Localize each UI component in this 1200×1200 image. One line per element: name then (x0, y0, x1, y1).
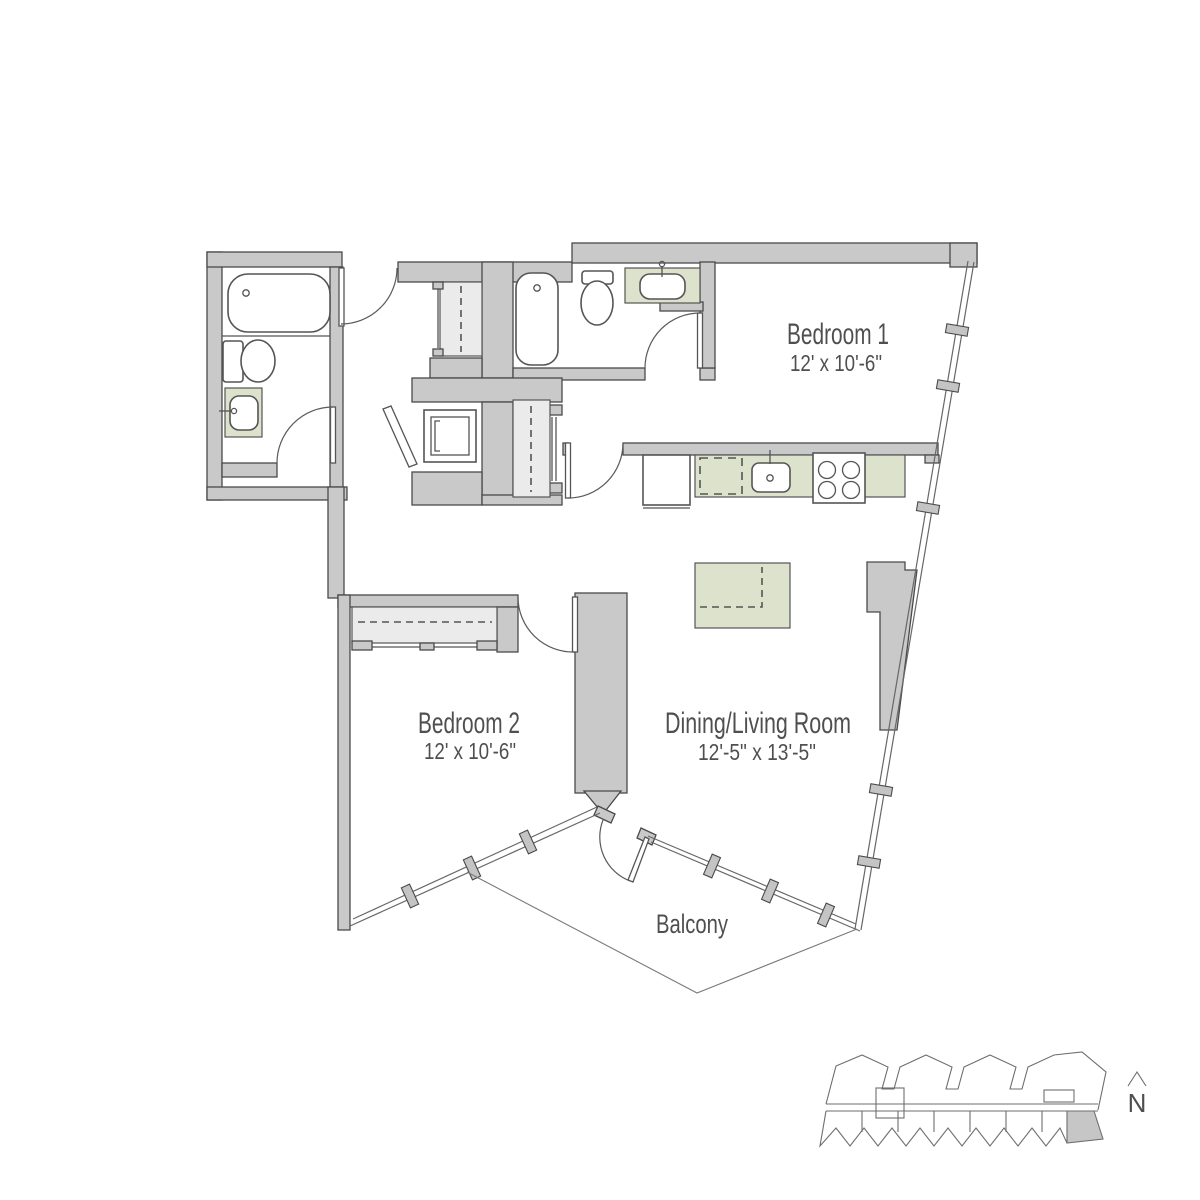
bathroom-2-fixtures (516, 261, 700, 365)
wall-laundry-bottom-left (412, 472, 482, 505)
bedroom2-label: Bedroom 2 (418, 707, 520, 740)
wall-kitchen-top (623, 443, 938, 455)
bedroom2-dims: 12' x 10'-6" (424, 738, 516, 764)
toilet-tank-icon (223, 341, 243, 382)
laundry (424, 410, 476, 462)
wall-top-bath1 (207, 252, 342, 267)
bathtub-icon (228, 274, 330, 332)
key-plan-core-right (1044, 1090, 1074, 1102)
refrigerator-icon (643, 455, 690, 505)
wall-top-corner (950, 243, 977, 267)
sink-icon (640, 274, 685, 299)
toilet-bowl-icon (241, 340, 275, 382)
kitchen (643, 450, 905, 628)
living-room-dims: 12'-5" x 13'-5" (698, 739, 816, 765)
wall-west-middle (328, 487, 344, 598)
bedroom2-door-swing (518, 597, 575, 652)
jamb-bed2-closet-right (477, 641, 497, 650)
wall-laundry-divider (482, 402, 513, 497)
entry-door-swing (341, 268, 397, 324)
balcony-door-swing (600, 820, 630, 881)
wall-kitchen-end (925, 455, 939, 463)
wall-bath1-bottom-outer (207, 487, 347, 500)
bath2-door-leaf (698, 313, 703, 368)
jamb-bed2-closet-left (352, 641, 372, 650)
mullion-icon (762, 879, 779, 903)
bedroom1-label: Bedroom 1 (787, 318, 889, 351)
mullion-icon (936, 380, 959, 393)
kitchen-island (695, 563, 790, 628)
north-label: N (1128, 1088, 1147, 1118)
wall-bath1-bottom-inner (222, 463, 277, 477)
bedroom2-closet (352, 607, 497, 643)
wall-closet1-below (430, 358, 482, 378)
key-plan-sawtooth (820, 1111, 1067, 1146)
bedroom1-dims: 12' x 10'-6" (790, 350, 882, 376)
wall-bedroom2-closet-right (497, 607, 518, 652)
hall-door-swing (568, 443, 623, 498)
key-plan-core-left (876, 1088, 904, 1118)
key-plan-unit-highlight (1067, 1111, 1103, 1143)
kitchen-sink-icon (752, 463, 790, 492)
wall-bath2-corner (700, 368, 715, 380)
floor-plan-page: Bedroom 1 12' x 10'-6" Bedroom 2 12' x 1… (0, 0, 1200, 1200)
bedroom2-door-leaf (573, 597, 578, 652)
foyer-closet (440, 282, 482, 356)
wall-top-bedroom1 (572, 243, 977, 263)
jamb-bed2-closet-mid (420, 643, 434, 650)
bath1-door-swing (277, 407, 333, 463)
bathroom-1-fixtures (219, 274, 330, 437)
wall-bedroom2-west (338, 595, 350, 930)
mullion-icon (857, 856, 880, 869)
key-plan-dividers (862, 1111, 1042, 1132)
wall-divider-bed2-living (575, 593, 627, 793)
toilet-bowl-icon (581, 281, 613, 325)
washer-dryer-icon (424, 410, 476, 462)
balcony-door-leaf (628, 837, 649, 882)
key-plan (820, 1052, 1106, 1146)
key-plan-top-bays (826, 1052, 1106, 1110)
wall-west-bath1 (207, 252, 222, 500)
mullion-icon (818, 903, 835, 927)
entry-door-leaf (339, 268, 344, 326)
bath2-door-swing (645, 313, 700, 368)
wall-closet1-right (482, 262, 513, 378)
mullion-icon (916, 502, 939, 515)
jamb-foyer-closet-top (433, 282, 443, 289)
wall-laundry-top (412, 378, 562, 402)
living-room-label: Dining/Living Room (665, 707, 851, 740)
mullion-icon (869, 784, 892, 797)
mullion-icon (945, 324, 968, 337)
hall-door-leaf (566, 443, 571, 498)
bath1-door-leaf (331, 407, 336, 463)
jamb-foyer-closet-bottom (433, 349, 443, 356)
wall-bedroom2-top (338, 595, 518, 607)
kitchen-counter (695, 455, 905, 497)
balcony-label: Balcony (656, 909, 728, 939)
north-arrow: N (1128, 1072, 1147, 1118)
floor-plan: Bedroom 1 12' x 10'-6" Bedroom 2 12' x 1… (0, 0, 1200, 1200)
bathtub-icon (516, 273, 558, 365)
laundry-door-leaf (383, 406, 417, 467)
north-chevron-icon (1128, 1072, 1146, 1086)
